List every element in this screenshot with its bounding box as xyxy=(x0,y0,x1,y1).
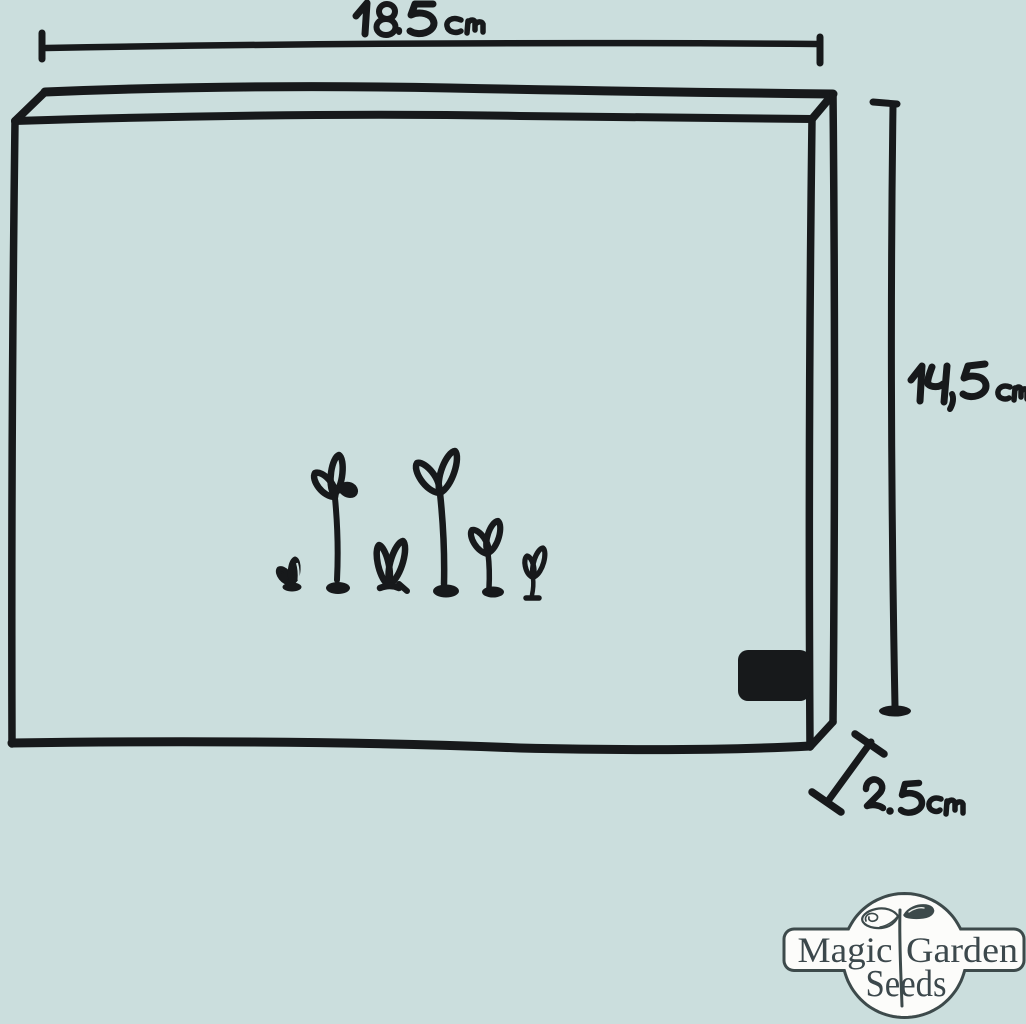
svg-text:Seeds: Seeds xyxy=(866,963,947,1005)
